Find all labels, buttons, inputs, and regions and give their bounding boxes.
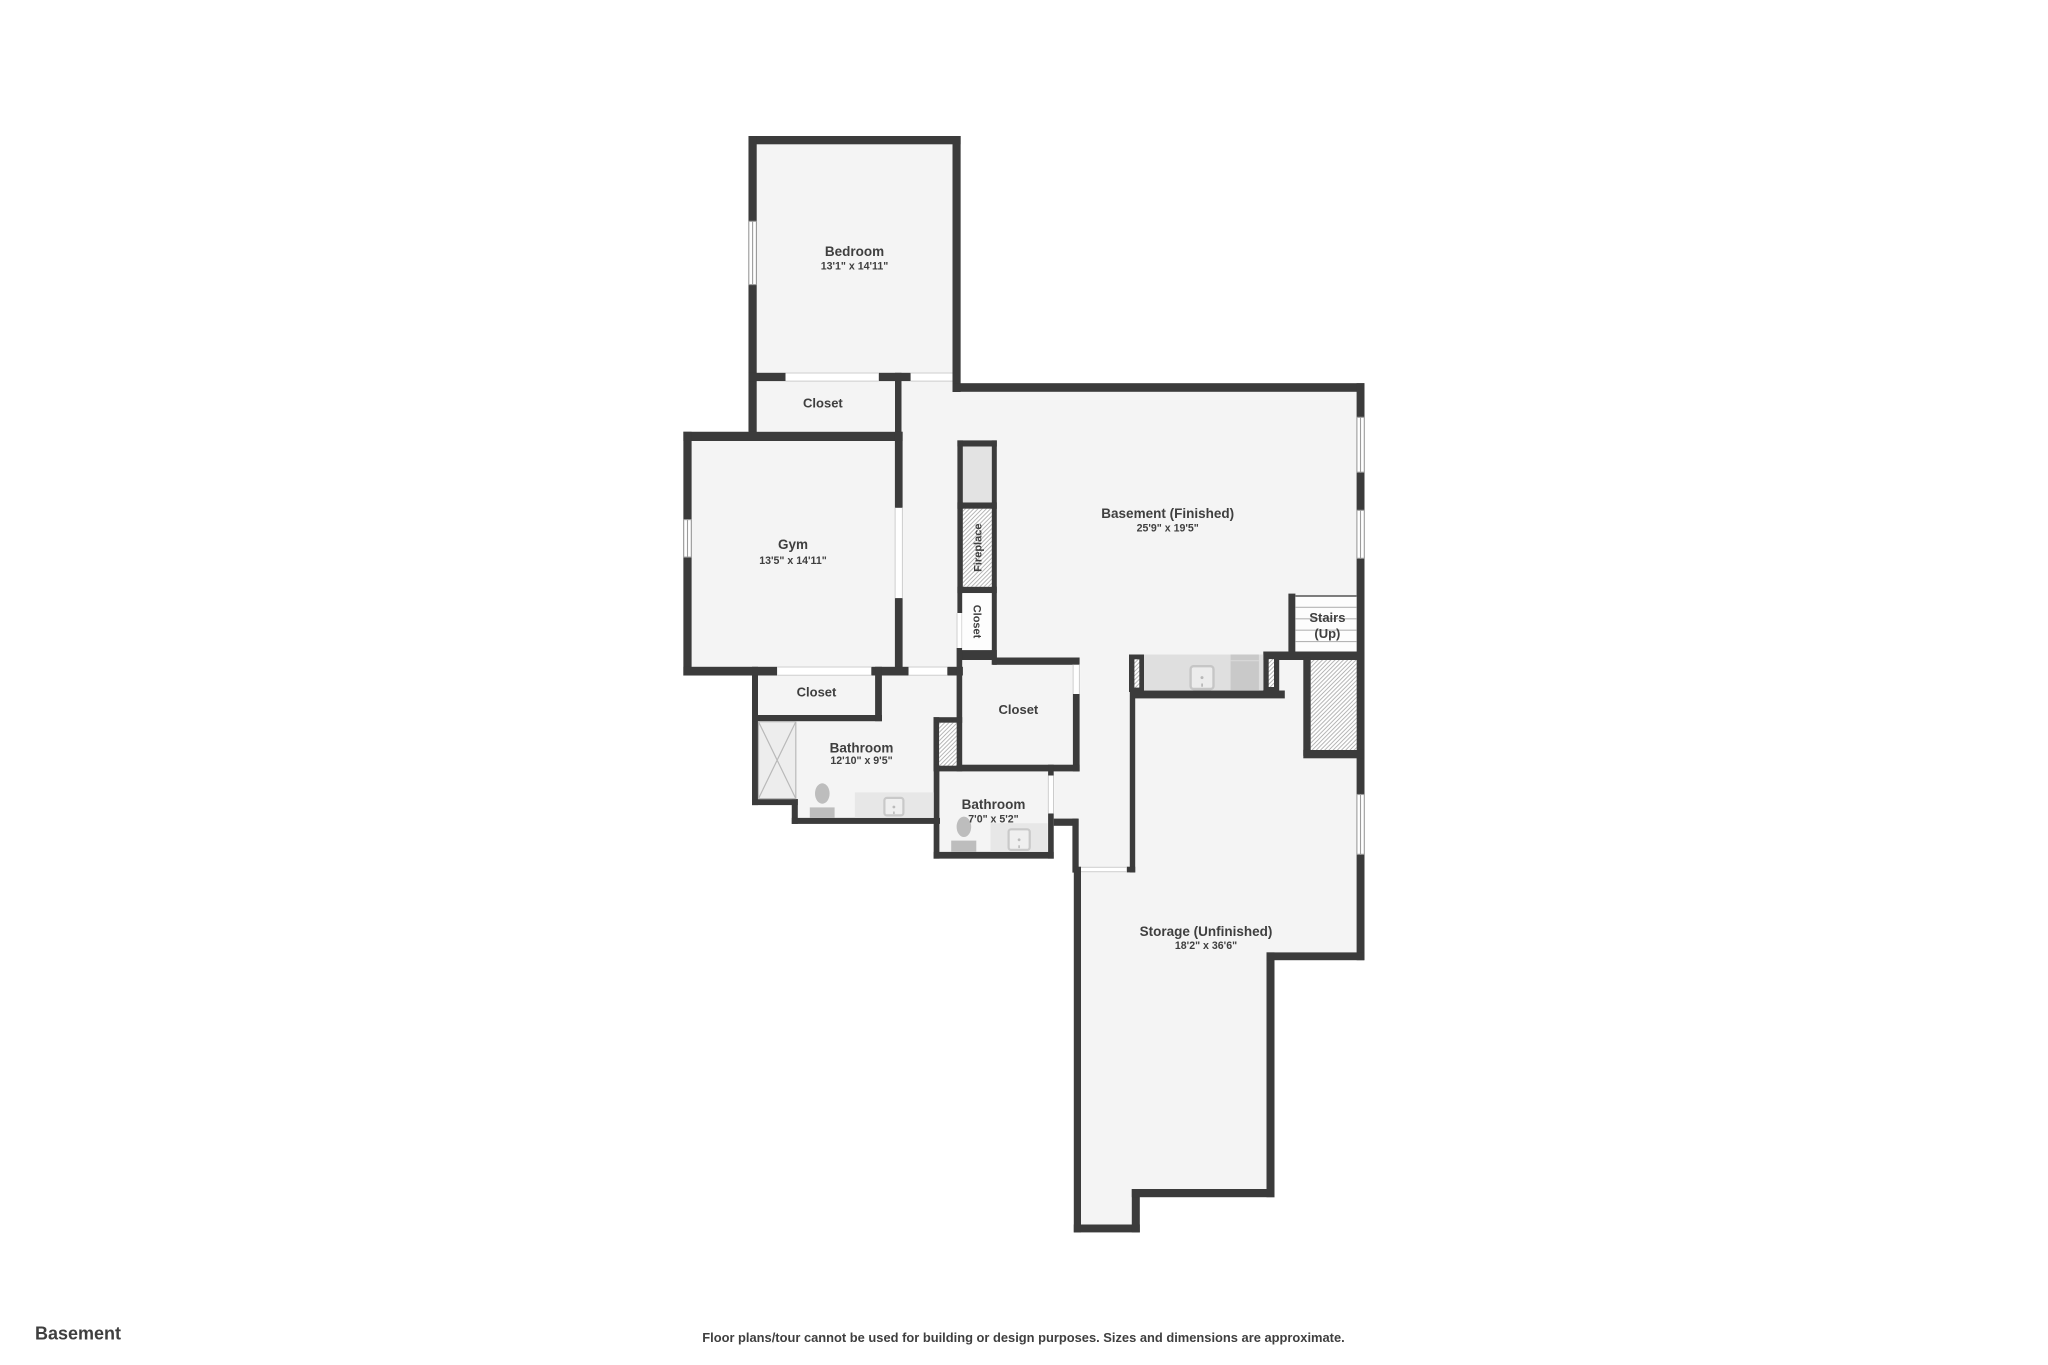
svg-text:7'0" x 5'2": 7'0" x 5'2"	[968, 813, 1018, 825]
svg-text:13'1" x 14'11": 13'1" x 14'11"	[821, 261, 889, 273]
svg-text:Basement (Finished): Basement (Finished)	[1101, 506, 1234, 521]
svg-text:Closet: Closet	[970, 605, 982, 639]
svg-text:(Up): (Up)	[1314, 626, 1340, 641]
svg-text:Gym: Gym	[778, 537, 808, 552]
svg-text:Stairs: Stairs	[1309, 610, 1345, 625]
svg-text:Storage (Unfinished): Storage (Unfinished)	[1140, 924, 1273, 939]
svg-text:Floor plans/tour cannot be use: Floor plans/tour cannot be used for buil…	[702, 1330, 1344, 1345]
svg-text:Bathroom: Bathroom	[830, 741, 894, 756]
svg-text:12'10" x 9'5": 12'10" x 9'5"	[830, 755, 892, 767]
svg-text:Closet: Closet	[797, 685, 837, 700]
svg-text:Fireplace: Fireplace	[972, 524, 984, 572]
svg-text:Closet: Closet	[803, 396, 843, 411]
svg-text:Bathroom: Bathroom	[962, 797, 1026, 812]
svg-text:Closet: Closet	[999, 702, 1039, 717]
svg-text:Basement: Basement	[35, 1324, 121, 1344]
svg-text:18'2" x 36'6": 18'2" x 36'6"	[1175, 940, 1237, 952]
svg-text:Bedroom: Bedroom	[825, 244, 884, 259]
svg-text:13'5" x 14'11": 13'5" x 14'11"	[759, 555, 827, 567]
svg-text:25'9" x 19'5": 25'9" x 19'5"	[1137, 523, 1199, 535]
